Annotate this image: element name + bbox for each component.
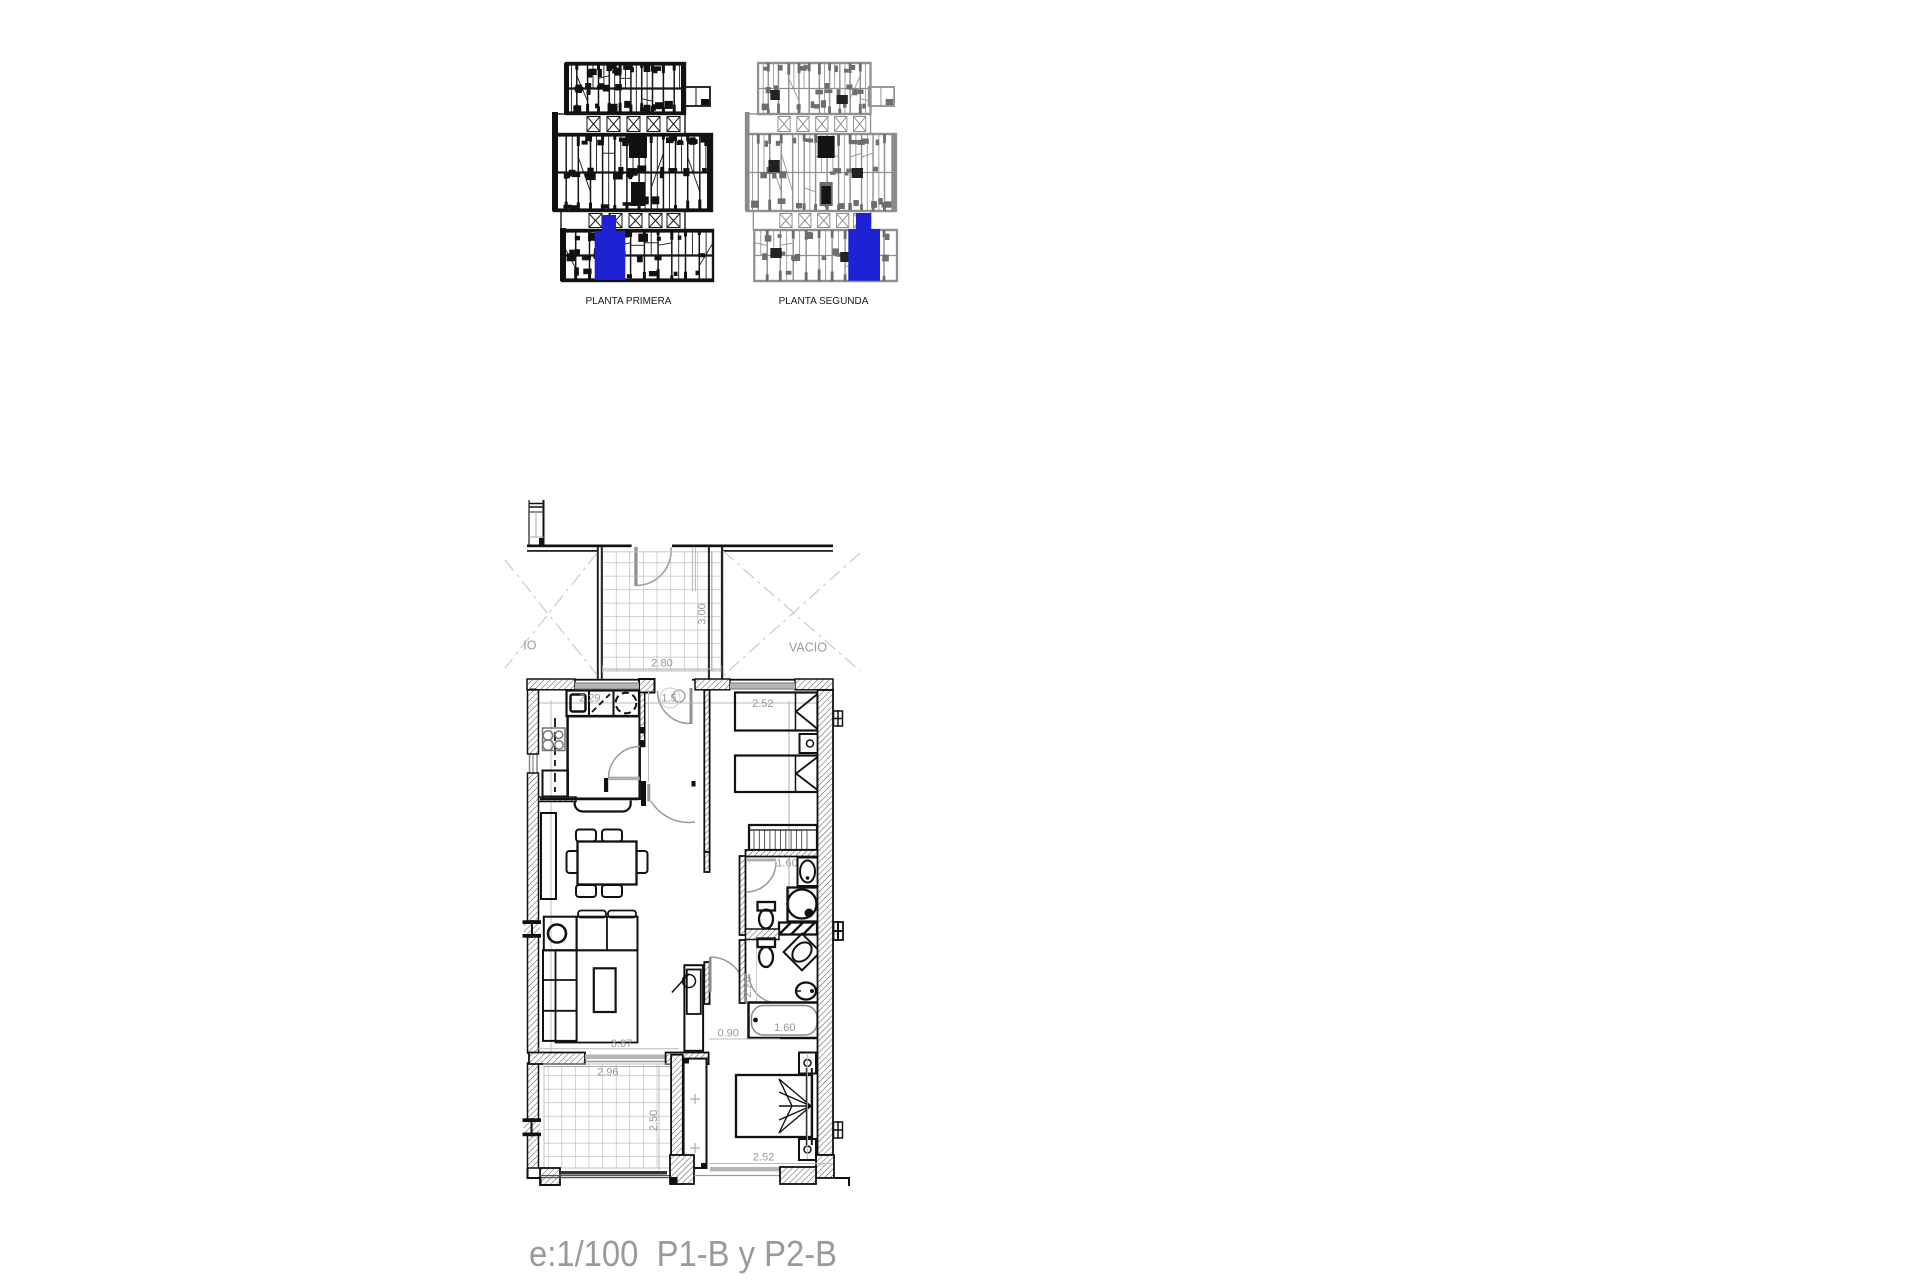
svg-text:PLANTA SEGUNDA: PLANTA SEGUNDA xyxy=(779,296,869,307)
svg-text:2.29: 2.29 xyxy=(579,693,600,705)
svg-text:3.87: 3.87 xyxy=(611,1038,632,1050)
svg-text:VACIO: VACIO xyxy=(789,641,827,655)
svg-text:2.80: 2.80 xyxy=(651,658,672,670)
svg-text:2.52: 2.52 xyxy=(753,1152,774,1164)
svg-text:0.90: 0.90 xyxy=(717,1028,738,1040)
svg-text:2.50: 2.50 xyxy=(648,1110,660,1131)
svg-text:2.96: 2.96 xyxy=(597,1067,618,1079)
svg-text:e:1/100 P1-B y P2-B: e:1/100 P1-B y P2-B xyxy=(529,1233,837,1274)
svg-text:IO: IO xyxy=(523,639,536,653)
svg-text:PLANTA PRIMERA: PLANTA PRIMERA xyxy=(586,296,672,307)
svg-text:1.5: 1.5 xyxy=(661,693,676,705)
svg-text:2.26: 2.26 xyxy=(742,976,754,997)
svg-text:1.60: 1.60 xyxy=(776,858,797,870)
svg-text:2.52: 2.52 xyxy=(752,698,773,710)
svg-text:1.60: 1.60 xyxy=(774,1022,795,1034)
svg-text:3.00: 3.00 xyxy=(697,603,709,624)
